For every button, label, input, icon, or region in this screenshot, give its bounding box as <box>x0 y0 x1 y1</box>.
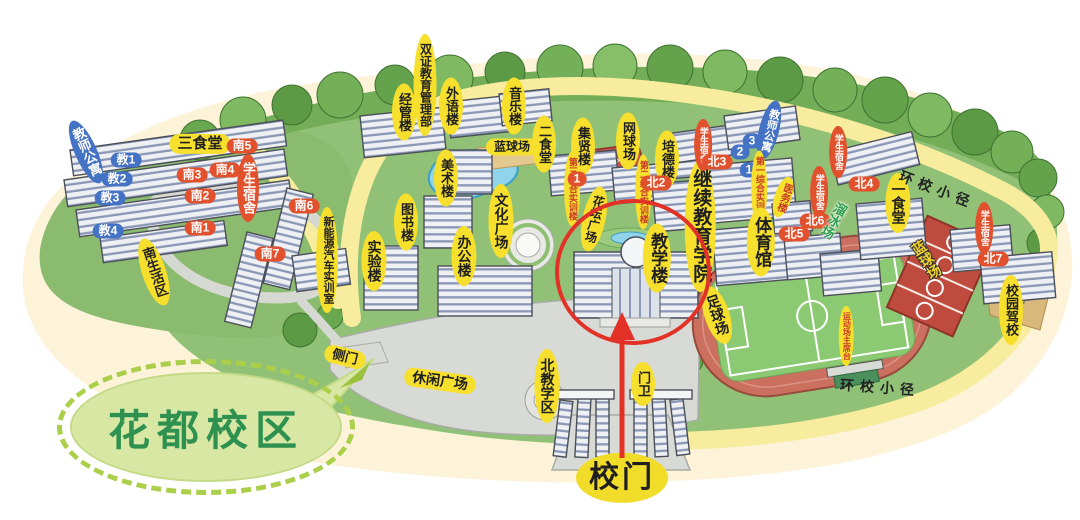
label-nan5: 南5 <box>227 139 258 154</box>
label-dier-zonghe-shixunlou: 第二综合实训楼 <box>635 155 651 230</box>
label-nan6: 南6 <box>289 199 320 214</box>
bubble-body: 花都校区 <box>70 372 342 482</box>
label-xiaomen: 校门 <box>576 453 668 503</box>
label-nan3: 南3 <box>177 168 208 183</box>
label-jixu-jiaoyu-xueyuan: 继续教育学院 <box>685 160 716 292</box>
label-pill-2: 2 <box>731 145 750 160</box>
label-jingguanlou: 经管楼 <box>392 84 416 141</box>
label-nan2: 南2 <box>185 189 216 204</box>
label-sanshitang: 三食堂 <box>169 134 230 154</box>
label-meishulou: 美术楼 <box>434 150 458 207</box>
label-marker-1-center: 1 <box>568 172 587 187</box>
label-waiyulou: 外语楼 <box>439 78 463 135</box>
label-bei4: 北4 <box>849 177 880 192</box>
label-nan1: 南1 <box>185 221 216 236</box>
campus-map: 花都校区 三食堂南5教师公寓教1教2教3教4南3南4学生宿舍南2南1南6南7南生… <box>0 0 1080 520</box>
label-xueshengsushe-bei6: 学生宿舍 <box>810 166 828 218</box>
label-shuangzheng-jiaoyu-guanlibu: 双证教育管理部 <box>414 34 437 136</box>
label-bei3: 北3 <box>702 155 733 170</box>
label-jiao2: 教2 <box>102 172 133 187</box>
label-lanqiuchang-pond: 蓝球场 <box>486 139 538 156</box>
label-wenhuaguangchang: 文化广场 <box>488 184 513 258</box>
label-xueshengsushe-south: 学生宿舍 <box>237 154 259 222</box>
label-shiyanlou: 实验楼 <box>361 231 386 291</box>
label-xinnengyuan-shixunshi: 新能源汽车实训室 <box>316 207 338 313</box>
label-yundongchang-zhuxitai: 运动场主席台 <box>839 306 854 366</box>
label-wangqiuchang: 网球场 <box>616 113 640 170</box>
label-disan-zonghe-shixunlou: 第三综合实训楼 <box>564 152 580 227</box>
label-menwei: 门卫 <box>631 362 655 406</box>
label-xiaoyuan-jiaxiao: 校园驾校 <box>999 275 1023 345</box>
label-jiao1: 教1 <box>111 153 142 168</box>
label-nan7: 南7 <box>255 247 286 262</box>
label-tushulou: 图书楼 <box>394 194 418 251</box>
label-yinyuelou: 音乐楼 <box>502 78 526 135</box>
campus-name: 花都校区 <box>108 397 304 458</box>
label-bei-jiaoxuequ: 北教学区 <box>534 349 559 423</box>
label-bei5: 北5 <box>779 227 810 242</box>
campus-name-bubble: 花都校区 <box>70 372 342 482</box>
label-nan4: 南4 <box>210 163 241 178</box>
label-ershitang: 二食堂 <box>532 116 556 173</box>
label-xueshengsushe-bei7: 学生宿舍 <box>975 202 993 254</box>
label-jiao4: 教4 <box>93 224 124 239</box>
label-bei7: 北7 <box>978 252 1009 267</box>
label-jiao3: 教3 <box>95 191 126 206</box>
label-bei2: 北2 <box>641 176 672 191</box>
label-bangonglou: 办公楼 <box>451 226 476 286</box>
label-xueshengsushe-bei4: 学生宿舍 <box>829 126 847 178</box>
